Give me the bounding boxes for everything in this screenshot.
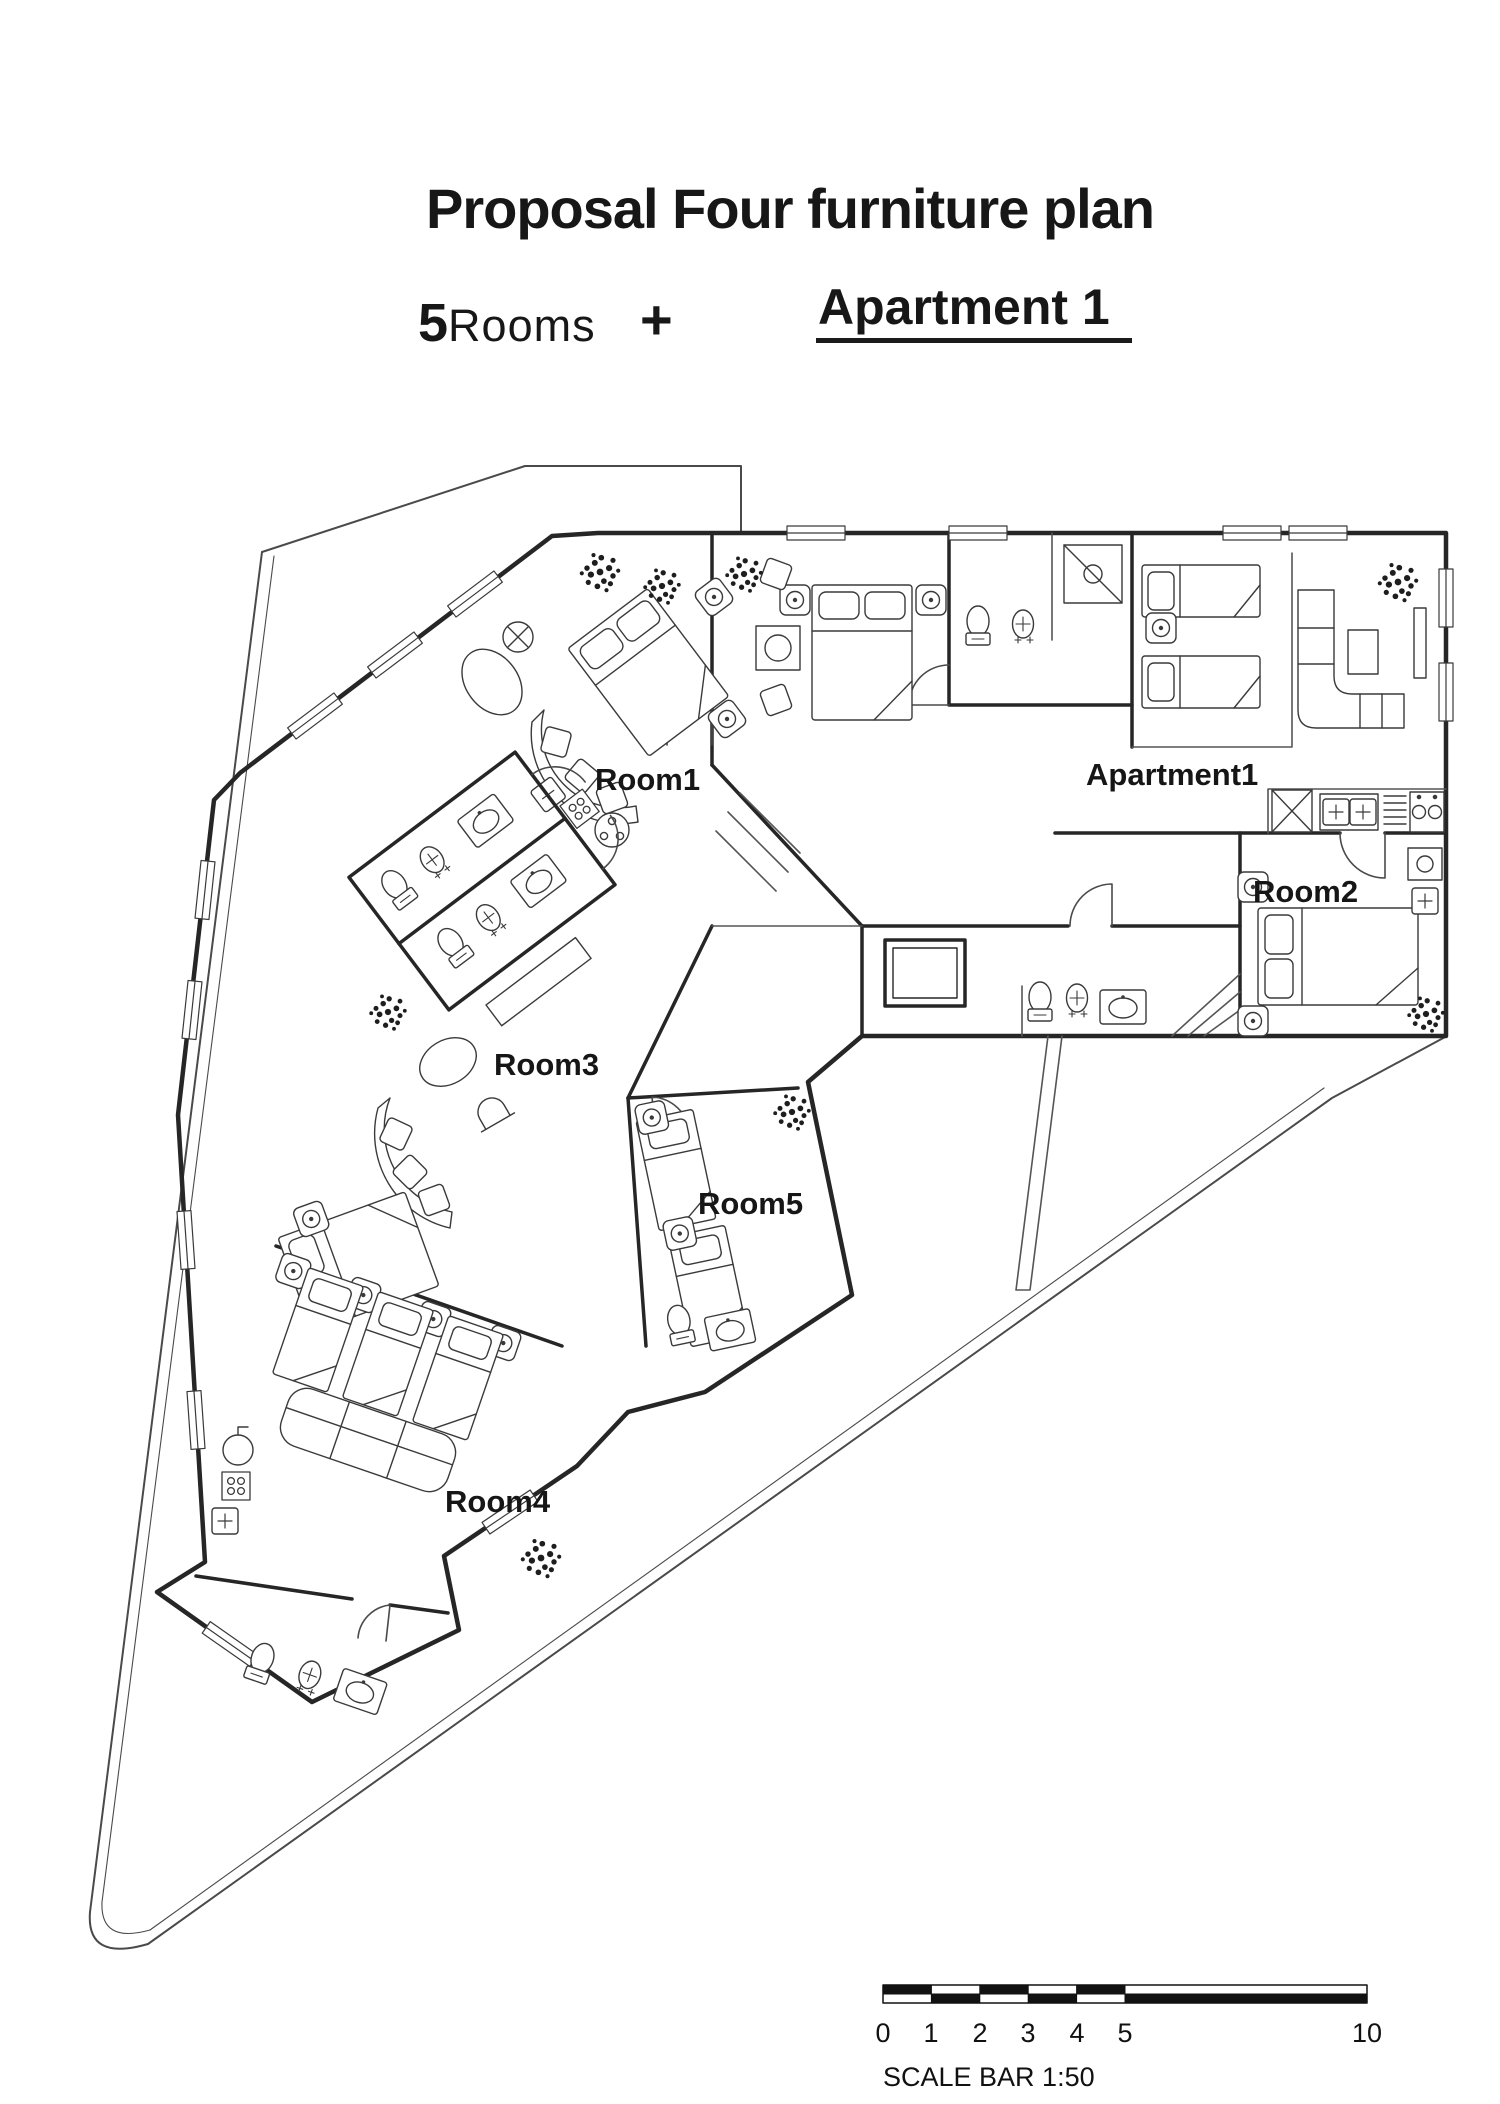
scale-tick: 10 [1352, 2018, 1382, 2048]
nightstand-lamp-icon [1146, 613, 1176, 643]
plant-icon [1378, 563, 1419, 602]
wall-corridor-to-wing [628, 926, 712, 1098]
scale-segment [1077, 1985, 1125, 1994]
label-room3: Room3 [494, 1047, 599, 1082]
window-icon [1223, 526, 1281, 540]
window-icon [1439, 663, 1453, 721]
scale-segment [980, 1985, 1028, 1994]
plant-icon [773, 1094, 810, 1130]
floor-plan-drawing: Room1 Apartment1 Room2 Room3 Room5 Room4… [0, 0, 1500, 2104]
stove-icon [222, 1472, 250, 1500]
label-apartment1: Apartment1 [1086, 757, 1258, 792]
stove-icon [1410, 792, 1444, 832]
plant-icon [369, 994, 406, 1030]
single-bed-icon [1142, 656, 1260, 708]
plant-icon [580, 553, 621, 592]
lot-upper-left-edge [262, 466, 525, 552]
window-icon [448, 571, 503, 617]
drain-board-icon [1384, 796, 1406, 824]
scale-tick: 5 [1117, 2018, 1132, 2048]
sink-basin-icon [1350, 799, 1376, 825]
coffee-table-icon [1348, 630, 1378, 674]
window-icon [288, 693, 343, 739]
rug-icon [411, 1028, 485, 1096]
scale-segment [883, 1985, 931, 1994]
dishwasher-icon [1272, 790, 1312, 832]
scale-segment [931, 1994, 979, 2003]
kitchen-sink-icon [1412, 888, 1438, 914]
faucet-icon [238, 1427, 248, 1435]
sink-icon [333, 1668, 388, 1715]
scale-ticks: 0 1 2 3 4 5 10 [875, 2018, 1382, 2048]
toilet-icon [1028, 982, 1052, 1021]
scale-caption: SCALE BAR 1:50 [883, 2062, 1095, 2092]
door-apartment-bath [909, 665, 949, 705]
label-room5: Room5 [698, 1186, 803, 1221]
scale-tick: 0 [875, 2018, 890, 2048]
cushion-icon [392, 1154, 429, 1191]
wall-corridor-oblique [712, 765, 862, 926]
elevator-shaft [885, 940, 965, 1006]
furniture-room5 [634, 1100, 756, 1351]
kitchen-sink-round-icon [223, 1435, 253, 1465]
plant-icon [521, 1539, 562, 1578]
nightstand-lamp-icon [662, 1216, 698, 1252]
scale-tick: 1 [923, 2018, 938, 2048]
stair-treads [716, 793, 800, 891]
kitchen-sink-icon [212, 1508, 238, 1534]
nightstand-lamp-icon [1238, 1006, 1268, 1036]
scale-bar: 0 1 2 3 4 5 10 SCALE BAR 1:50 [875, 1985, 1382, 2092]
door-room4-bath [358, 1605, 390, 1641]
terrace-railing [1016, 1036, 1062, 1290]
single-bed-icon [1142, 565, 1260, 617]
ramp-treads [1172, 974, 1240, 1036]
double-bed-icon [568, 588, 729, 756]
double-bed-icon [812, 585, 912, 720]
window-icon [202, 1622, 258, 1667]
scale-segment [1028, 1994, 1076, 2003]
bidet-icon [415, 842, 452, 881]
ceiling-fan-icon [503, 622, 533, 652]
elevator-outer [885, 940, 965, 1006]
window-icon [195, 860, 215, 919]
window-icon [787, 526, 845, 540]
wall-room4-bath [196, 1576, 448, 1613]
bidet-icon [1013, 610, 1034, 643]
nightstand-lamp-icon [634, 1100, 670, 1136]
side-table-icon [469, 1090, 515, 1132]
door-core [1070, 884, 1112, 926]
window-icon [949, 526, 1007, 540]
nightstand-lamp-icon [693, 576, 735, 618]
cushion-icon [417, 1183, 450, 1216]
furniture-bathrooms-core [1028, 982, 1146, 1024]
toilet-icon [376, 865, 419, 911]
window-icon [177, 1211, 195, 1270]
window-icon [187, 1391, 205, 1450]
scale-tick: 2 [972, 2018, 987, 2048]
scale-segment [1125, 1994, 1367, 2003]
door-room2 [1340, 833, 1385, 878]
label-room2: Room2 [1253, 874, 1358, 909]
scale-tick: 3 [1020, 2018, 1035, 2048]
sink-icon [510, 854, 567, 909]
lot-left-edge [90, 552, 262, 1949]
elevator-inner [893, 948, 957, 998]
lot-top-edge [525, 466, 741, 533]
double-bed-icon [1258, 908, 1418, 1005]
scale-tick: 4 [1069, 2018, 1084, 2048]
stove-icon [560, 789, 599, 828]
floor-plan-sheet: { "header": { "title": "Proposal Four fu… [0, 0, 1500, 2104]
kitchenette-burner-box [1408, 848, 1442, 880]
knob-icon [1417, 795, 1420, 798]
sink-basin-icon [1323, 799, 1349, 825]
nightstand-lamp-icon [780, 585, 810, 615]
window-icon [182, 980, 202, 1039]
toilet-icon [432, 923, 475, 969]
bidet-icon [1067, 984, 1088, 1017]
sink-icon [457, 793, 514, 848]
wardrobe-icon [486, 938, 591, 1026]
window-icon [368, 632, 423, 678]
window-icon [1439, 569, 1453, 627]
window-icon [1289, 526, 1347, 540]
lamp-icon [765, 635, 791, 661]
toilet-icon [966, 606, 990, 645]
armchair-icon [759, 683, 792, 716]
lot-bottom-edge [148, 1036, 1447, 1944]
bidet-icon [471, 900, 508, 939]
cushion-icon [540, 726, 572, 758]
nightstand-lamp-icon [916, 585, 946, 615]
label-room1: Room1 [595, 762, 700, 797]
sideboard-icon [1414, 608, 1426, 678]
knob-icon [1433, 795, 1436, 798]
plant-icon [725, 556, 762, 592]
label-room4: Room4 [445, 1484, 551, 1519]
sink-icon [1100, 990, 1146, 1024]
